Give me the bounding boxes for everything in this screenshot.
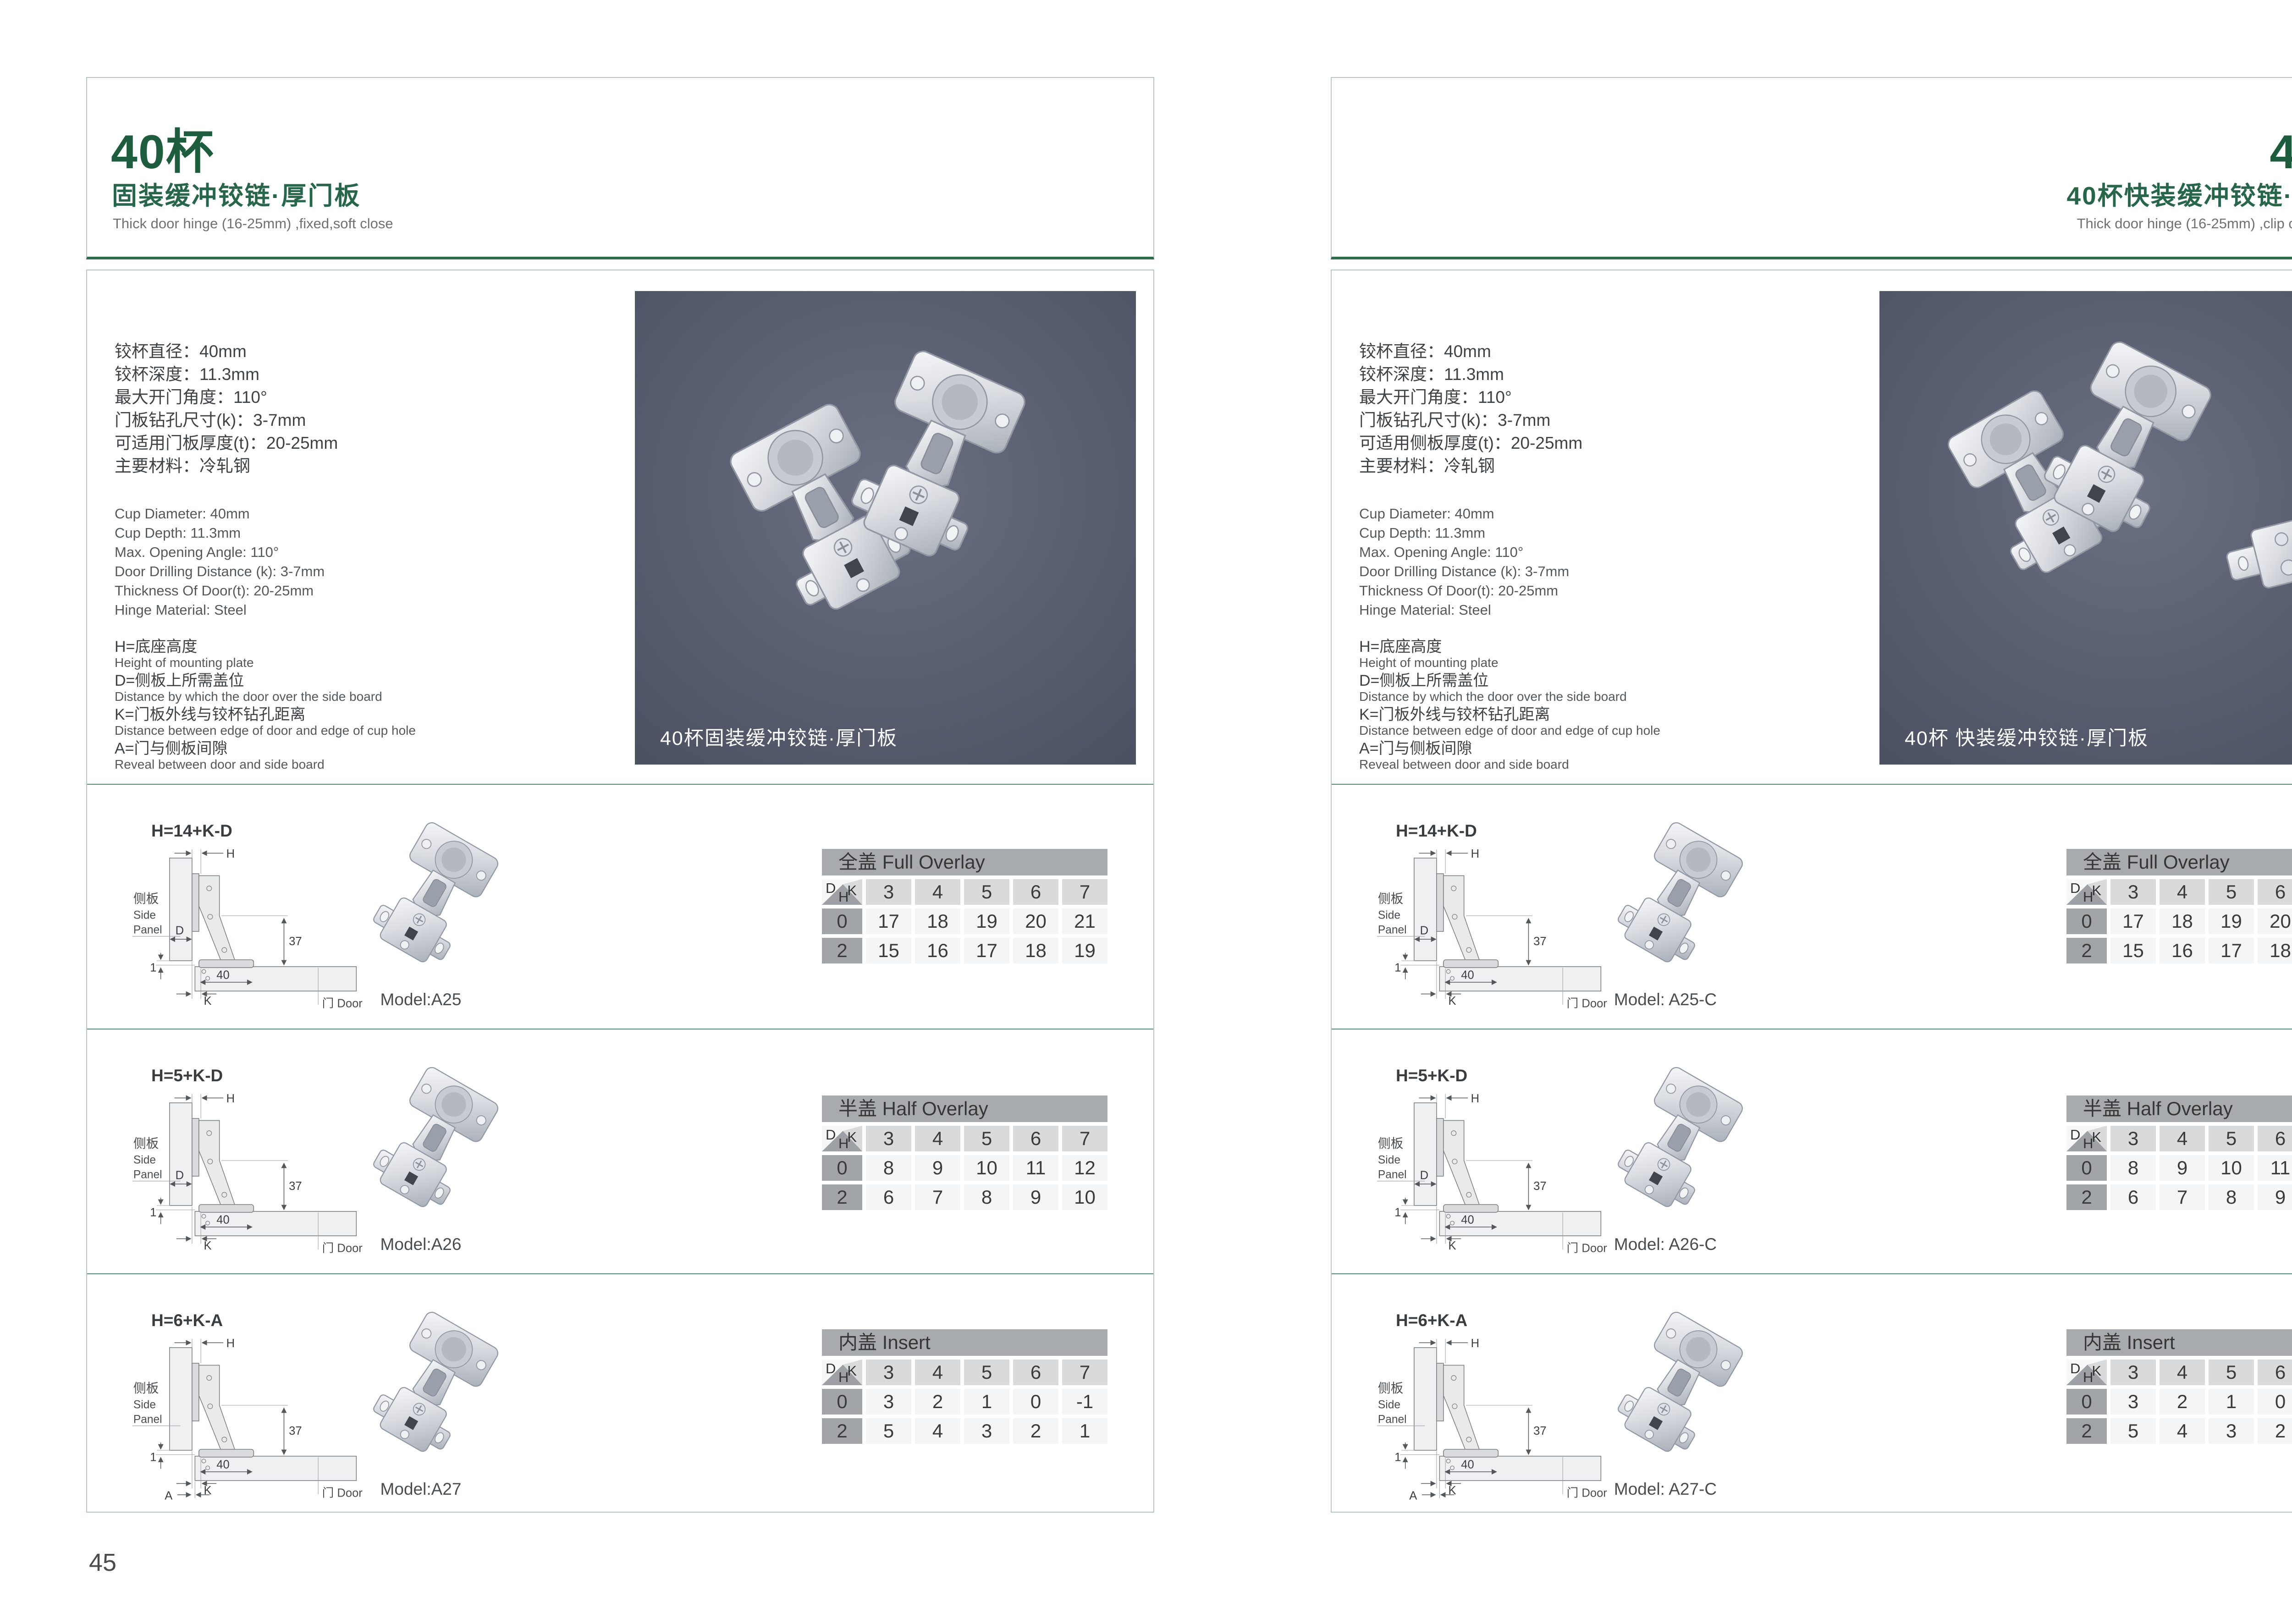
table-value-cell: 8 — [2209, 1184, 2254, 1210]
legend-zh: A=门与侧板间隙 — [1359, 740, 1660, 757]
table-k-header: 6 — [2258, 1126, 2292, 1151]
table-corner-cell: DKH — [822, 1126, 862, 1151]
svg-text:侧板: 侧板 — [1378, 1381, 1403, 1395]
table-value-cell: 4 — [915, 1418, 960, 1444]
table-value-cell: 3 — [964, 1418, 1009, 1444]
spec-line: Thickness Of Door(t): 20-25mm — [115, 581, 325, 600]
table-h-label: 0 — [822, 908, 862, 934]
hinge-illustration — [1610, 809, 1821, 1006]
dimension-legend: H=底座高度 Height of mounting plate D=侧板上所需盖… — [1359, 638, 1660, 774]
table-corner-cell: DKH — [2066, 879, 2107, 905]
table-k-header: 3 — [2110, 1126, 2156, 1151]
specs-chinese: 铰杯直径：40mm 铰杯深度：11.3mm 最大开门角度：110° 门板钻孔尺寸… — [115, 340, 338, 478]
corner-label-d: D — [2070, 1128, 2080, 1142]
table-k-header: 3 — [866, 1360, 911, 1385]
spec-line: Cup Depth: 11.3mm — [115, 523, 325, 543]
svg-text:1: 1 — [150, 961, 156, 974]
hinge-illustration — [366, 1054, 577, 1251]
svg-text:K: K — [204, 1484, 212, 1497]
corner-label-h: H — [2083, 1136, 2093, 1151]
table-value-cell: 10 — [2209, 1155, 2254, 1181]
svg-text:Panel: Panel — [1378, 1168, 1407, 1181]
table-k-header: 3 — [866, 1126, 911, 1151]
table-value-cell: 3 — [866, 1389, 911, 1415]
table-h-label: 2 — [822, 938, 862, 963]
legend-zh: D=侧板上所需盖位 — [1359, 672, 1660, 689]
svg-text:H: H — [1471, 1092, 1479, 1105]
svg-text:37: 37 — [289, 935, 302, 948]
table-value-cell: 11 — [1013, 1155, 1058, 1181]
table-value-cell: 4 — [2160, 1418, 2205, 1444]
page-subtitle-en: Thick door hinge (16-25mm) ,fixed,soft c… — [113, 215, 393, 232]
table-value-cell: 11 — [2258, 1155, 2292, 1181]
table-value-cell: 3 — [2110, 1389, 2156, 1415]
table-h-label: 0 — [822, 1155, 862, 1181]
hinge-illustration — [1610, 1054, 1821, 1251]
corner-label-h: H — [2083, 1370, 2093, 1384]
svg-text:侧板: 侧板 — [1378, 892, 1403, 906]
svg-text:Side: Side — [133, 1154, 156, 1166]
corner-label-d: D — [826, 1361, 836, 1376]
specs-chinese: 铰杯直径：40mm 铰杯深度：11.3mm 最大开门角度：110° 门板钻孔尺寸… — [1359, 340, 1582, 478]
svg-text:40: 40 — [216, 1213, 229, 1226]
table-value-cell: 18 — [1013, 938, 1058, 963]
table-h-label: 2 — [2066, 938, 2107, 963]
table-value-cell: 18 — [915, 908, 960, 934]
legend-en: Reveal between door and side board — [115, 757, 416, 772]
corner-label-h: H — [838, 1136, 848, 1151]
legend-zh: D=侧板上所需盖位 — [115, 672, 416, 689]
spec-line: 最大开门角度：110° — [1359, 386, 1582, 409]
svg-text:Panel: Panel — [1378, 1413, 1407, 1426]
table-value-cell: 20 — [1013, 908, 1058, 934]
table-value-cell: 17 — [866, 908, 911, 934]
spec-line: 可适用侧板厚度(t)：20-25mm — [1359, 432, 1582, 455]
table-value-cell: 9 — [1013, 1184, 1058, 1210]
table-value-cell: 9 — [2160, 1155, 2205, 1181]
svg-text:40: 40 — [216, 969, 229, 981]
table-k-header: 3 — [2110, 879, 2156, 905]
svg-text:37: 37 — [1533, 1425, 1546, 1437]
table-k-header: 4 — [2160, 1126, 2205, 1151]
svg-text:40: 40 — [1461, 1213, 1474, 1226]
diagram-formula: H=14+K-D — [151, 821, 232, 841]
overlay-table: 全盖 Full OverlayDKH3456701718192021215161… — [822, 849, 1107, 963]
photo-caption: 40杯固装缓冲铰链·厚门板 — [660, 722, 898, 751]
table-k-header: 6 — [2258, 1360, 2292, 1385]
svg-text:Side: Side — [1378, 1398, 1400, 1411]
overlay-table: 内盖 InsertDKH3456703210-1254321 — [822, 1329, 1107, 1444]
table-value-cell: 7 — [2160, 1184, 2205, 1210]
catalog-spread: 40杯 固装缓冲铰链·厚门板 Thick door hinge (16-25mm… — [0, 0, 2292, 1624]
table-title: 半盖 Half Overlay — [2066, 1096, 2292, 1122]
svg-text:Panel: Panel — [133, 1168, 162, 1181]
table-corner-cell: DKH — [822, 879, 862, 905]
table-value-cell: 17 — [964, 938, 1009, 963]
svg-text:D: D — [176, 1169, 184, 1182]
table-value-cell: 5 — [866, 1418, 911, 1444]
table-k-header: 4 — [915, 1360, 960, 1385]
corner-label-d: D — [826, 881, 836, 895]
svg-text:H: H — [1471, 848, 1479, 860]
spec-line: 铰杯直径：40mm — [1359, 340, 1582, 363]
corner-label-k: K — [2092, 1130, 2101, 1144]
legend-en: Height of mounting plate — [115, 655, 416, 670]
table-value-cell: 19 — [964, 908, 1009, 934]
spec-line: Door Drilling Distance (k): 3-7mm — [115, 562, 325, 581]
table-value-cell: 16 — [915, 938, 960, 963]
spec-line: Hinge Material: Steel — [115, 600, 325, 620]
table-title: 全盖 Full Overlay — [2066, 849, 2292, 875]
row-divider — [1332, 1029, 2292, 1029]
table-value-cell: 20 — [2258, 908, 2292, 934]
spec-line: Max. Opening Angle: 110° — [115, 543, 325, 562]
table-k-header: 4 — [915, 879, 960, 905]
page-left: 40杯 固装缓冲铰链·厚门板 Thick door hinge (16-25mm… — [86, 0, 1154, 1624]
specs-english: Cup Diameter: 40mm Cup Depth: 11.3mm Max… — [1359, 504, 1569, 620]
svg-text:1: 1 — [150, 1206, 156, 1219]
page-header: 40杯 固装缓冲铰链·厚门板 Thick door hinge (16-25mm… — [86, 77, 1154, 259]
row-divider — [87, 1029, 1153, 1029]
spec-line: 门板钻孔尺寸(k)：3-7mm — [115, 409, 338, 432]
table-value-cell: 15 — [866, 938, 911, 963]
svg-text:D: D — [1420, 924, 1428, 937]
table-value-cell: 17 — [2209, 938, 2254, 963]
table-value-cell: 9 — [2258, 1184, 2292, 1210]
table-k-header: 5 — [964, 1360, 1009, 1385]
svg-text:1: 1 — [1394, 1206, 1401, 1219]
spec-line: Hinge Material: Steel — [1359, 600, 1569, 620]
svg-text:K: K — [1449, 1239, 1456, 1252]
table-value-cell: 19 — [2209, 908, 2254, 934]
corner-label-h: H — [838, 1370, 848, 1384]
table-value-cell: 15 — [2110, 938, 2156, 963]
table-h-label: 0 — [2066, 1155, 2107, 1181]
legend-zh: A=门与侧板间隙 — [115, 740, 416, 757]
page-header: 40杯 40杯快装缓冲铰链·厚门板 Thick door hinge (16-2… — [1331, 77, 2292, 259]
spec-line: Door Drilling Distance (k): 3-7mm — [1359, 562, 1569, 581]
svg-text:侧板: 侧板 — [133, 1136, 159, 1151]
svg-text:K: K — [204, 1239, 212, 1252]
legend-zh: H=底座高度 — [1359, 638, 1660, 655]
corner-label-k: K — [2092, 883, 2101, 897]
table-k-header: 3 — [2110, 1360, 2156, 1385]
corner-label-d: D — [826, 1128, 836, 1142]
table-value-cell: 2 — [2160, 1389, 2205, 1415]
table-value-cell: 8 — [964, 1184, 1009, 1210]
spec-line: 最大开门角度：110° — [115, 386, 338, 409]
page-subtitle-zh: 固装缓冲铰链·厚门板 — [112, 175, 361, 212]
table-k-header: 5 — [2209, 1360, 2254, 1385]
diagram-formula: H=5+K-D — [1396, 1066, 1467, 1085]
table-corner-cell: DKH — [822, 1360, 862, 1385]
diagram-formula: H=14+K-D — [1396, 821, 1477, 841]
table-h-label: 2 — [2066, 1184, 2107, 1210]
spec-line: 门板钻孔尺寸(k)：3-7mm — [1359, 409, 1582, 432]
table-value-cell: 8 — [866, 1155, 911, 1181]
table-k-header: 4 — [2160, 879, 2205, 905]
table-k-header: 4 — [2160, 1360, 2205, 1385]
table-title: 内盖 Insert — [2066, 1329, 2292, 1356]
table-value-cell: -1 — [1062, 1389, 1107, 1415]
table-title: 内盖 Insert — [822, 1329, 1107, 1356]
page-right: 40杯 40杯快装缓冲铰链·厚门板 Thick door hinge (16-2… — [1331, 0, 2292, 1624]
page-title: 40杯 — [2270, 113, 2292, 182]
table-h-label: 2 — [2066, 1418, 2107, 1444]
table-value-cell: 10 — [1062, 1184, 1107, 1210]
product-photo-image — [635, 291, 1136, 765]
product-photo: 40杯固装缓冲铰链·厚门板 — [635, 291, 1136, 765]
table-k-header: 6 — [2258, 879, 2292, 905]
table-value-cell: 1 — [964, 1389, 1009, 1415]
svg-text:H: H — [226, 1337, 235, 1350]
diagram-formula: H=6+K-A — [1396, 1311, 1467, 1330]
corner-label-k: K — [847, 883, 857, 897]
table-value-cell: 2 — [1013, 1418, 1058, 1444]
table-k-header: 7 — [1062, 1360, 1107, 1385]
legend-en: Height of mounting plate — [1359, 655, 1660, 670]
svg-text:K: K — [1449, 1484, 1456, 1497]
model-label: Model:A26 — [347, 1235, 494, 1254]
table-k-header: 6 — [1013, 879, 1058, 905]
corner-label-d: D — [2070, 881, 2080, 895]
svg-text:H: H — [226, 848, 235, 860]
table-value-cell: 18 — [2258, 938, 2292, 963]
photo-caption: 40杯 快装缓冲铰链·厚门板 — [1905, 722, 2149, 751]
page-title: 40杯 — [111, 113, 215, 182]
model-label: Model:A27 — [347, 1480, 494, 1499]
page-number: 45 — [89, 1548, 116, 1577]
svg-text:1: 1 — [1394, 1451, 1401, 1464]
corner-label-k: K — [847, 1364, 857, 1378]
table-value-cell: 9 — [915, 1155, 960, 1181]
table-k-header: 4 — [915, 1126, 960, 1151]
page-subtitle-en: Thick door hinge (16-25mm) ,clip on ,sof… — [2077, 215, 2292, 232]
table-value-cell: 5 — [2110, 1418, 2156, 1444]
spec-line: 铰杯深度：11.3mm — [115, 363, 338, 386]
table-h-label: 0 — [2066, 1389, 2107, 1415]
table-k-header: 7 — [1062, 1126, 1107, 1151]
table-k-header: 3 — [866, 879, 911, 905]
table-value-cell: 2 — [2258, 1418, 2292, 1444]
table-value-cell: 0 — [1013, 1389, 1058, 1415]
table-value-cell: 2 — [915, 1389, 960, 1415]
product-photo: 40杯 快装缓冲铰链·厚门板 — [1879, 291, 2292, 765]
spec-line: Max. Opening Angle: 110° — [1359, 543, 1569, 562]
hinge-illustration — [366, 809, 577, 1006]
legend-en: Distance between edge of door and edge o… — [115, 723, 416, 738]
svg-text:K: K — [204, 995, 212, 1007]
svg-text:37: 37 — [1533, 1180, 1546, 1193]
svg-text:Panel: Panel — [1378, 924, 1407, 936]
table-k-header: 5 — [964, 879, 1009, 905]
svg-text:40: 40 — [1461, 1458, 1474, 1471]
product-photo-image — [1879, 291, 2292, 765]
corner-label-k: K — [847, 1130, 857, 1144]
model-label: Model: A27-C — [1592, 1480, 1739, 1499]
svg-text:Side: Side — [1378, 1154, 1400, 1166]
corner-label-h: H — [838, 890, 848, 904]
table-k-header: 5 — [964, 1126, 1009, 1151]
overlay-table: 内盖 InsertDKH3456703210-1254321 — [2066, 1329, 2292, 1444]
table-value-cell: 17 — [2110, 908, 2156, 934]
spec-line: 可适用门板厚度(t)：20-25mm — [115, 432, 338, 455]
svg-text:H: H — [1471, 1337, 1479, 1350]
table-value-cell: 1 — [2209, 1389, 2254, 1415]
diagram-formula: H=6+K-A — [151, 1311, 223, 1330]
svg-text:1: 1 — [150, 1451, 156, 1464]
model-label: Model: A26-C — [1592, 1235, 1739, 1254]
svg-text:侧板: 侧板 — [133, 892, 159, 906]
legend-en: Distance between edge of door and edge o… — [1359, 723, 1660, 738]
svg-text:1: 1 — [1394, 961, 1401, 974]
table-h-label: 2 — [822, 1418, 862, 1444]
legend-zh: K=门板外线与铰杯钻孔距离 — [1359, 706, 1660, 723]
overlay-table: 全盖 Full OverlayDKH3456701718192021215161… — [2066, 849, 2292, 963]
table-title: 全盖 Full Overlay — [822, 849, 1107, 875]
dimension-legend: H=底座高度 Height of mounting plate D=侧板上所需盖… — [115, 638, 416, 774]
hinge-illustration — [1610, 1299, 1821, 1496]
svg-text:40: 40 — [216, 1458, 229, 1471]
corner-label-k: K — [2092, 1364, 2101, 1378]
corner-label-d: D — [2070, 1361, 2080, 1376]
row-divider — [87, 1273, 1153, 1274]
spec-line: Cup Diameter: 40mm — [1359, 504, 1569, 523]
table-corner-cell: DKH — [2066, 1360, 2107, 1385]
svg-text:D: D — [176, 924, 184, 937]
hinge-illustration — [366, 1299, 577, 1496]
spec-line: Cup Diameter: 40mm — [115, 504, 325, 523]
table-value-cell: 7 — [915, 1184, 960, 1210]
table-value-cell: 16 — [2160, 938, 2205, 963]
legend-en: Reveal between door and side board — [1359, 757, 1660, 772]
legend-zh: K=门板外线与铰杯钻孔距离 — [115, 706, 416, 723]
spec-line: 主要材料：冷轧钢 — [115, 455, 338, 478]
table-value-cell: 8 — [2110, 1155, 2156, 1181]
svg-text:侧板: 侧板 — [1378, 1136, 1403, 1151]
table-h-label: 0 — [822, 1389, 862, 1415]
model-label: Model: A25-C — [1592, 990, 1739, 1009]
spec-line: 铰杯深度：11.3mm — [1359, 363, 1582, 386]
table-value-cell: 0 — [2258, 1389, 2292, 1415]
table-value-cell: 21 — [1062, 908, 1107, 934]
table-value-cell: 3 — [2209, 1418, 2254, 1444]
spec-line: Thickness Of Door(t): 20-25mm — [1359, 581, 1569, 600]
table-k-header: 5 — [2209, 879, 2254, 905]
model-label: Model:A25 — [347, 990, 494, 1009]
table-k-header: 7 — [1062, 879, 1107, 905]
spec-line: Cup Depth: 11.3mm — [1359, 523, 1569, 543]
svg-text:Panel: Panel — [133, 924, 162, 936]
overlay-table: 半盖 Half OverlayDKH345670891011122678910 — [822, 1096, 1107, 1210]
row-divider — [87, 784, 1153, 785]
svg-text:Side: Side — [1378, 909, 1400, 921]
overlay-table: 半盖 Half OverlayDKH345670891011122678910 — [2066, 1096, 2292, 1210]
table-k-header: 5 — [2209, 1126, 2254, 1151]
table-corner-cell: DKH — [2066, 1126, 2107, 1151]
svg-text:K: K — [1449, 995, 1456, 1007]
table-value-cell: 12 — [1062, 1155, 1107, 1181]
svg-text:Side: Side — [133, 909, 156, 921]
row-divider — [1332, 1273, 2292, 1274]
svg-text:37: 37 — [289, 1180, 302, 1193]
legend-zh: H=底座高度 — [115, 638, 416, 655]
legend-en: Distance by which the door over the side… — [1359, 689, 1660, 704]
table-value-cell: 1 — [1062, 1418, 1107, 1444]
svg-text:侧板: 侧板 — [133, 1381, 159, 1395]
spec-line: 铰杯直径：40mm — [115, 340, 338, 363]
spec-line: 主要材料：冷轧钢 — [1359, 455, 1582, 478]
table-value-cell: 6 — [2110, 1184, 2156, 1210]
specs-english: Cup Diameter: 40mm Cup Depth: 11.3mm Max… — [115, 504, 325, 620]
svg-text:40: 40 — [1461, 969, 1474, 981]
svg-text:Side: Side — [133, 1398, 156, 1411]
table-value-cell: 18 — [2160, 908, 2205, 934]
svg-text:Panel: Panel — [133, 1413, 162, 1426]
svg-text:D: D — [1420, 1169, 1428, 1182]
legend-en: Distance by which the door over the side… — [115, 689, 416, 704]
table-value-cell: 19 — [1062, 938, 1107, 963]
table-h-label: 2 — [822, 1184, 862, 1210]
page-subtitle-zh: 40杯快装缓冲铰链·厚门板 — [2067, 175, 2292, 212]
table-value-cell: 10 — [964, 1155, 1009, 1181]
svg-text:A: A — [165, 1490, 173, 1502]
svg-text:A: A — [1409, 1490, 1417, 1502]
corner-label-h: H — [2083, 890, 2093, 904]
table-k-header: 6 — [1013, 1126, 1058, 1151]
table-value-cell: 6 — [866, 1184, 911, 1210]
svg-text:37: 37 — [1533, 935, 1546, 948]
svg-text:37: 37 — [289, 1425, 302, 1437]
svg-text:H: H — [226, 1092, 235, 1105]
row-divider — [1332, 784, 2292, 785]
diagram-formula: H=5+K-D — [151, 1066, 223, 1085]
table-h-label: 0 — [2066, 908, 2107, 934]
table-title: 半盖 Half Overlay — [822, 1096, 1107, 1122]
table-k-header: 6 — [1013, 1360, 1058, 1385]
